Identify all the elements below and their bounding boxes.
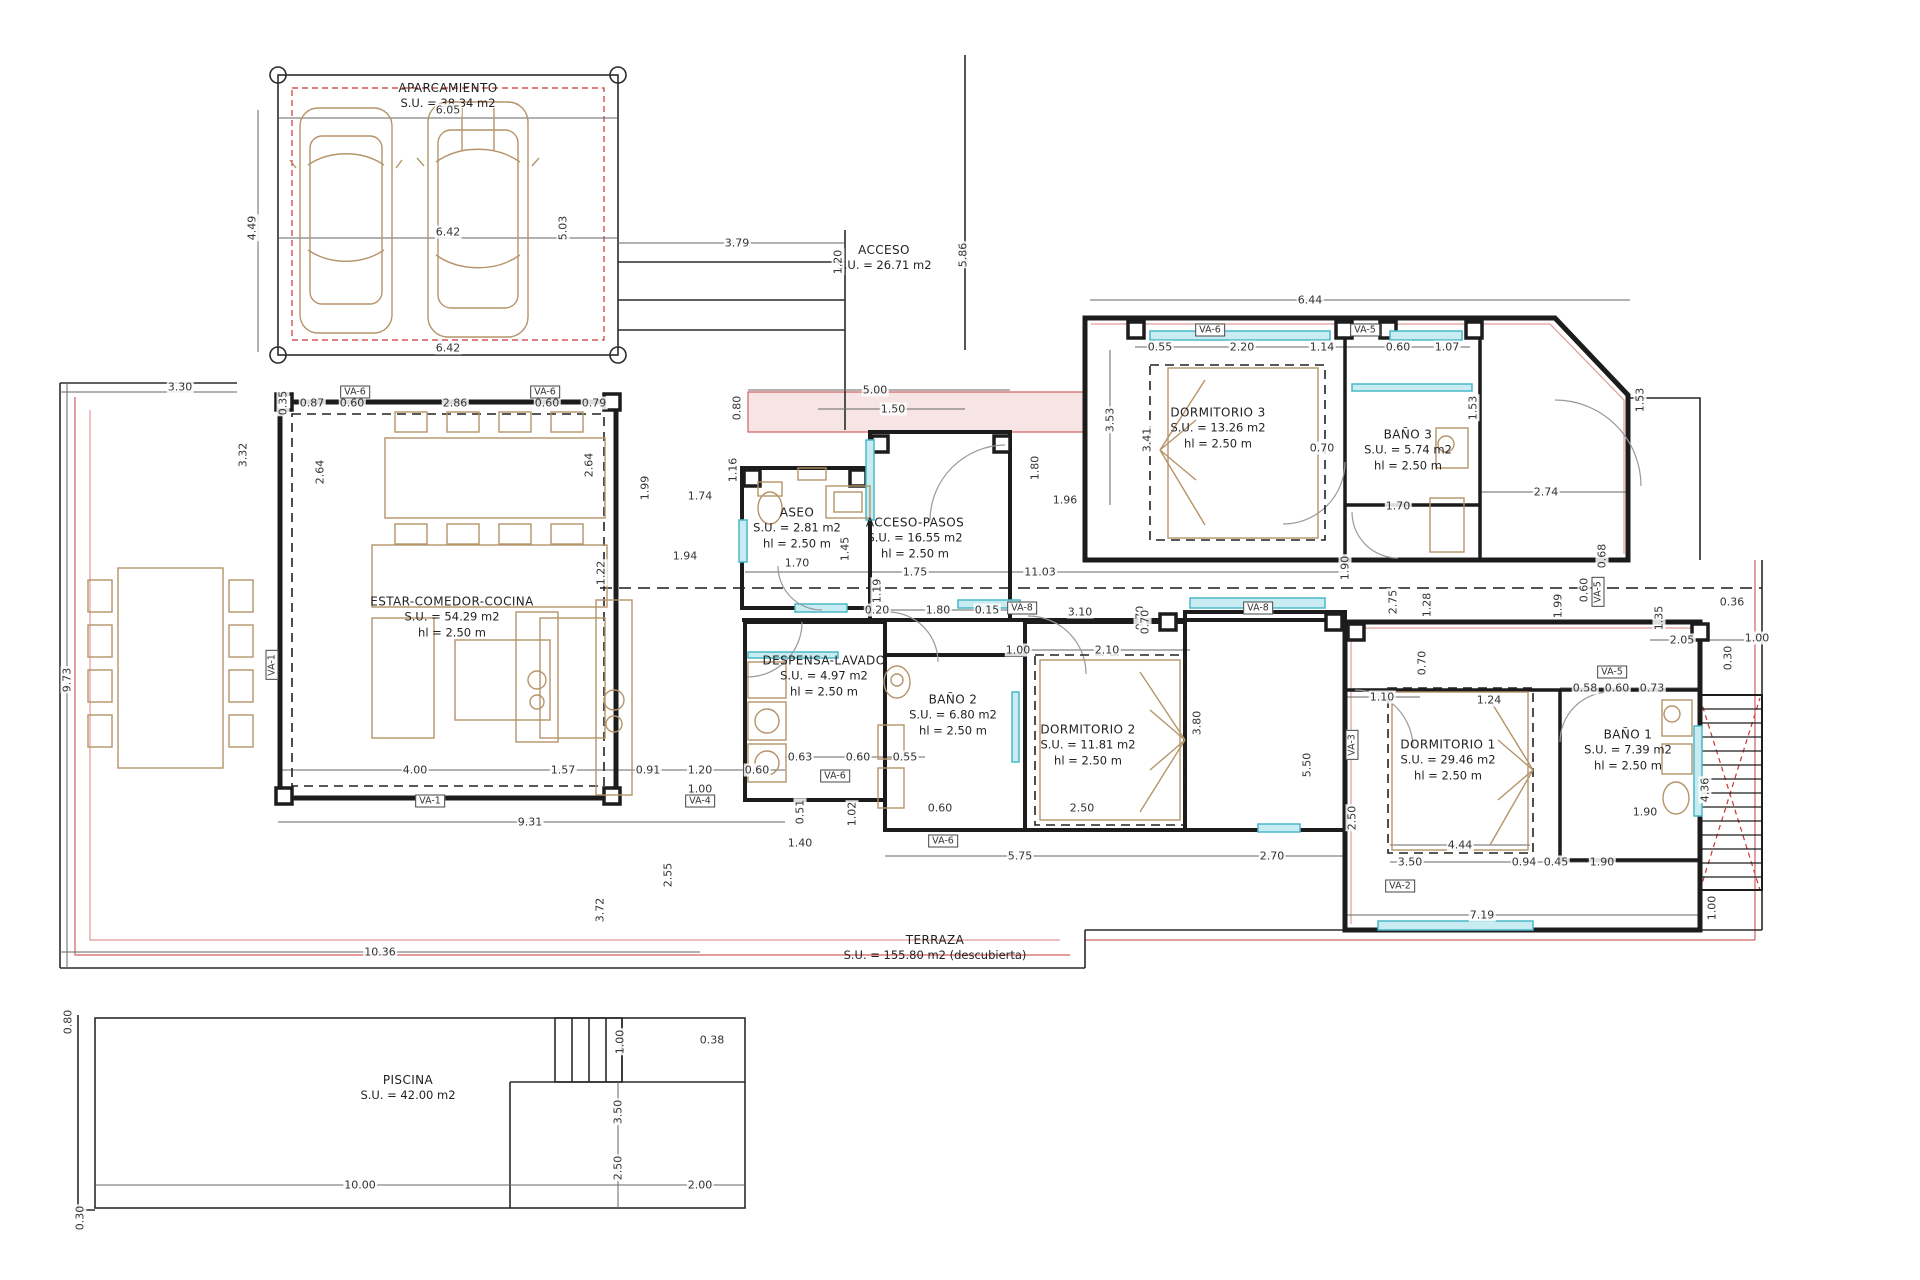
- site-outline: [60, 55, 1762, 1210]
- red-overlay-lines: [75, 88, 1760, 955]
- terrace-table: [88, 568, 253, 768]
- dining-table: [385, 412, 605, 544]
- sofa-set: [372, 545, 607, 738]
- bano-3-fixtures: [1430, 428, 1468, 552]
- bano-1-fixtures: [1662, 700, 1692, 814]
- laundry-appliances: [748, 662, 786, 782]
- bano-2-fixtures: [878, 666, 910, 808]
- bed-dormitorio-1: [1392, 692, 1533, 850]
- car-2-icon: [417, 102, 539, 337]
- dimension-lines: [60, 110, 1762, 1208]
- bed-dormitorio-2: [1040, 660, 1185, 820]
- car-1-icon: [290, 108, 402, 333]
- floor-plan-canvas: APARCAMIENTOS.U. = 38.34 m2ACCESOS.U. = …: [0, 0, 1920, 1280]
- bed-dormitorio-3: [1160, 368, 1318, 538]
- furniture: [88, 102, 1692, 850]
- floor-plan-drawing: [0, 0, 1920, 1280]
